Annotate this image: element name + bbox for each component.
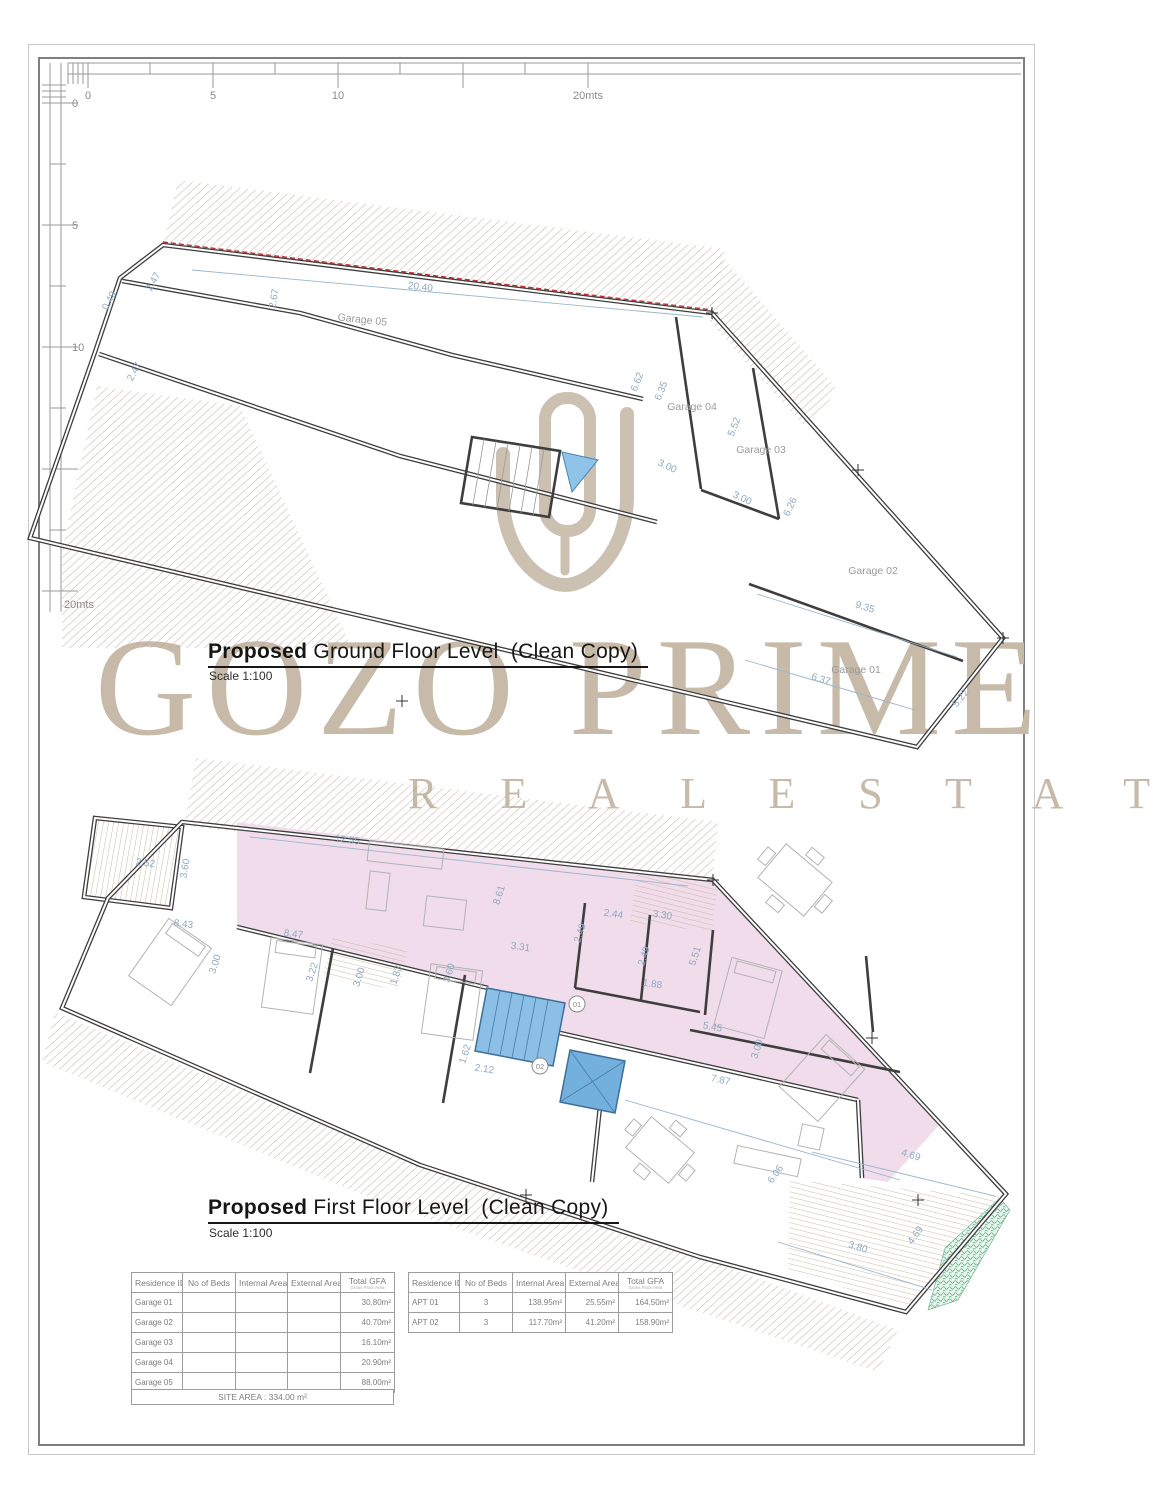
residence-id: Garage 01 (132, 1293, 183, 1313)
unit-marker-02: 02 (532, 1058, 548, 1074)
ground-floor-scale: Scale 1:100 (209, 669, 272, 683)
table-row: Garage 0420.90m² (132, 1353, 395, 1373)
dimension-label: 6.62 (629, 371, 647, 394)
beds-cell: 3 (460, 1313, 513, 1333)
col-header: External Area (288, 1273, 341, 1293)
dimension-label: 8.43 (173, 918, 194, 931)
residence-id: APT 01 (409, 1293, 460, 1313)
dimension-label: 1.62 (457, 1043, 474, 1065)
external-cell (288, 1353, 341, 1373)
dimension-label: 6.37 (810, 672, 832, 688)
ruler-label: 0 (85, 90, 91, 102)
first-floor-title: Proposed First Floor Level (Clean Copy) (208, 1196, 619, 1224)
col-header: Internal Area (236, 1273, 288, 1293)
table-row: APT 023117.70m²41.20m²158.90m² (409, 1313, 673, 1333)
dimension-label: 5.22 (951, 687, 972, 709)
dimension-label: 6.35 (653, 380, 671, 403)
dimension-label: 5.52 (726, 416, 744, 439)
internal-cell (236, 1333, 288, 1353)
apartment-schedule-table: Residence ID No of Beds Internal Area Ex… (408, 1272, 673, 1333)
ff-partition (866, 956, 873, 1032)
table-row: APT 013138.95m²25.55m²164.50m² (409, 1293, 673, 1313)
dimension-label: 2.67 (267, 288, 281, 310)
internal-cell (236, 1293, 288, 1313)
table-row: Garage 0130.80m² (132, 1293, 395, 1313)
beds-cell (183, 1313, 236, 1333)
external-cell: 41.20m² (566, 1313, 619, 1333)
col-header: Internal Area (513, 1273, 566, 1293)
internal-cell: 138.95m² (513, 1293, 566, 1313)
dimension-label: 20.40 (407, 281, 434, 295)
table-row: Garage 0240.70m² (132, 1313, 395, 1333)
apartment-01-pink-area (237, 822, 940, 1182)
gf-partition (749, 584, 963, 661)
ruler-label: 5 (210, 90, 216, 102)
gfa-cell: 158.90m² (619, 1313, 673, 1333)
gfa-cell: 164.50m² (619, 1293, 673, 1313)
residence-id: APT 02 (409, 1313, 460, 1333)
external-cell (288, 1333, 341, 1353)
first-floor-title-bold: Proposed (208, 1196, 307, 1219)
drawing-sheet: GOZO PRIME R E A L E S T A T E (0, 0, 1159, 1500)
internal-cell (236, 1313, 288, 1333)
beds-cell (183, 1333, 236, 1353)
gfa-cell: 16.10m² (341, 1333, 395, 1353)
unit-marker-01: 01 (569, 996, 585, 1012)
gfa-cell: 20.90m² (341, 1353, 395, 1373)
dimension-label: 2.12 (474, 1063, 495, 1077)
table-row: Garage 0316.10m² (132, 1333, 395, 1353)
internal-cell: 117.70m² (513, 1313, 566, 1333)
svg-text:01: 01 (573, 1000, 581, 1009)
gfa-cell: 30.80m² (341, 1293, 395, 1313)
dimension-label: 6.26 (782, 495, 800, 518)
ruler-label: 10 (332, 90, 344, 102)
ground-floor-title-rest: Ground Floor Level (Clean Copy) (307, 640, 638, 663)
room-label: Garage 04 (667, 401, 717, 413)
dimension-label: 3.00 (656, 458, 679, 476)
ground-floor-title-bold: Proposed (208, 640, 307, 663)
beds-cell (183, 1353, 236, 1373)
gf-lift-shaft (562, 452, 598, 492)
gfa-subnote: Gross Floor Area (622, 1286, 669, 1289)
ruler-label: 10 (72, 342, 84, 354)
external-cell (288, 1293, 341, 1313)
beds-cell: 3 (460, 1293, 513, 1313)
beds-cell (183, 1293, 236, 1313)
dimension-label: 7.87 (710, 1073, 732, 1088)
room-label: Garage 01 (831, 664, 881, 676)
col-header: Residence ID (409, 1273, 460, 1293)
ff-front-terrace (84, 818, 182, 908)
internal-cell (236, 1353, 288, 1373)
svg-text:02: 02 (536, 1062, 544, 1071)
site-hatch (708, 252, 838, 428)
site-area-table: SITE AREA : 334.00 m² (131, 1389, 394, 1405)
col-header: Residence ID (132, 1273, 183, 1293)
ruler-label: 0 (72, 98, 78, 110)
table-header-row: Residence ID No of Beds Internal Area Ex… (132, 1273, 395, 1293)
col-header: Total GFAGross Floor Area (619, 1273, 673, 1293)
site-area-value: SITE AREA : 334.00 m² (132, 1390, 394, 1405)
top-ruler: 0 5 10 20mts (68, 63, 1021, 102)
garage-schedule-table: Residence ID No of Beds Internal Area Ex… (131, 1272, 395, 1393)
table-header-row: Residence ID No of Beds Internal Area Ex… (409, 1273, 673, 1293)
room-label: Garage 02 (848, 565, 898, 577)
residence-id: Garage 02 (132, 1313, 183, 1333)
site-hatch (163, 180, 725, 316)
ground-floor-title: Proposed Ground Floor Level (Clean Copy) (208, 640, 648, 668)
first-floor-title-rest: First Floor Level (Clean Copy) (307, 1196, 608, 1219)
room-label: Garage 03 (736, 444, 786, 456)
col-header: External Area (566, 1273, 619, 1293)
dimension-label: 3.60 (178, 858, 192, 880)
residence-id: Garage 04 (132, 1353, 183, 1373)
ruler-label: 5 (72, 220, 78, 232)
gfa-cell: 40.70m² (341, 1313, 395, 1333)
gfa-subnote: Gross Floor Area (344, 1286, 391, 1289)
first-floor-scale: Scale 1:100 (209, 1226, 272, 1240)
external-cell: 25.55m² (566, 1293, 619, 1313)
col-header: No of Beds (460, 1273, 513, 1293)
col-header: No of Beds (183, 1273, 236, 1293)
ruler-label: 20mts (573, 90, 603, 102)
ff-balcony (630, 874, 718, 932)
external-cell (288, 1313, 341, 1333)
dimension-label: 6.06 (766, 1163, 786, 1186)
col-header: Total GFAGross Floor Area (341, 1273, 395, 1293)
dimension-label: 3.00 (207, 953, 224, 975)
residence-id: Garage 03 (132, 1333, 183, 1353)
dimension-label: 9.35 (854, 600, 876, 616)
